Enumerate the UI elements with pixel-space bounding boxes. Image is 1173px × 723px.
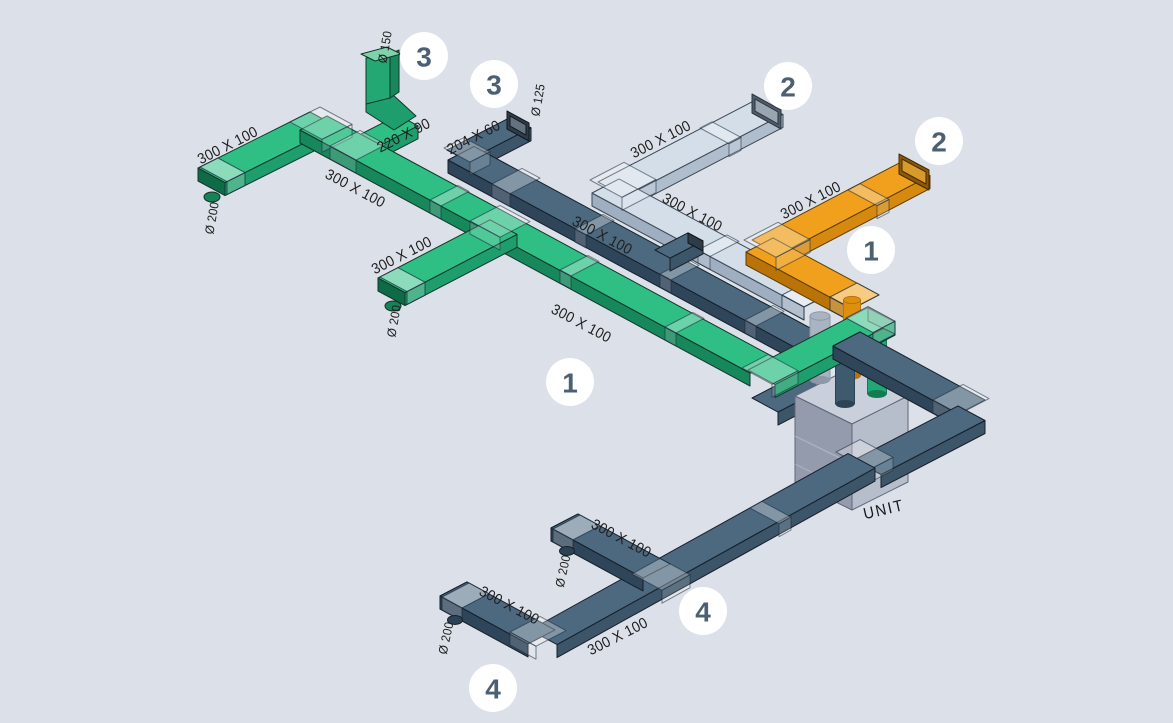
zone-badge-number: 2 (931, 127, 947, 158)
zone-badge-4: 4 (469, 664, 517, 712)
zone-badge-number: 1 (863, 236, 879, 267)
zone-badge-4: 4 (679, 587, 727, 635)
zone-badge-number: 4 (695, 597, 711, 628)
zone-badge-1: 1 (847, 226, 895, 274)
duct-diagram-canvas: 33221144Ø 150300 X 100Ø 200220 X 90204 X… (0, 0, 1173, 723)
zone-badge-1: 1 (546, 358, 594, 406)
dimension-label: Ø 200 (552, 553, 573, 588)
dimension-label: Ø 200 (435, 620, 456, 655)
dimension-label: Ø 200 (202, 201, 222, 236)
dimension-label: 300 X 100 (548, 301, 614, 346)
zone-badge-number: 4 (485, 674, 501, 705)
zone-badge-number: 2 (780, 72, 796, 103)
zone-badge-number: 3 (486, 70, 502, 101)
zone-badge-2: 2 (915, 117, 963, 165)
zone-badge-number: 1 (562, 368, 578, 399)
zone-badge-2: 2 (764, 62, 812, 110)
zone-badge-3: 3 (470, 60, 518, 108)
zone-badge-3: 3 (400, 32, 448, 80)
zone-badge-number: 3 (416, 42, 432, 73)
dimension-label: Ø 125 (528, 83, 548, 118)
duct-3d-viewport[interactable]: 33221144Ø 150300 X 100Ø 200220 X 90204 X… (0, 0, 1173, 723)
